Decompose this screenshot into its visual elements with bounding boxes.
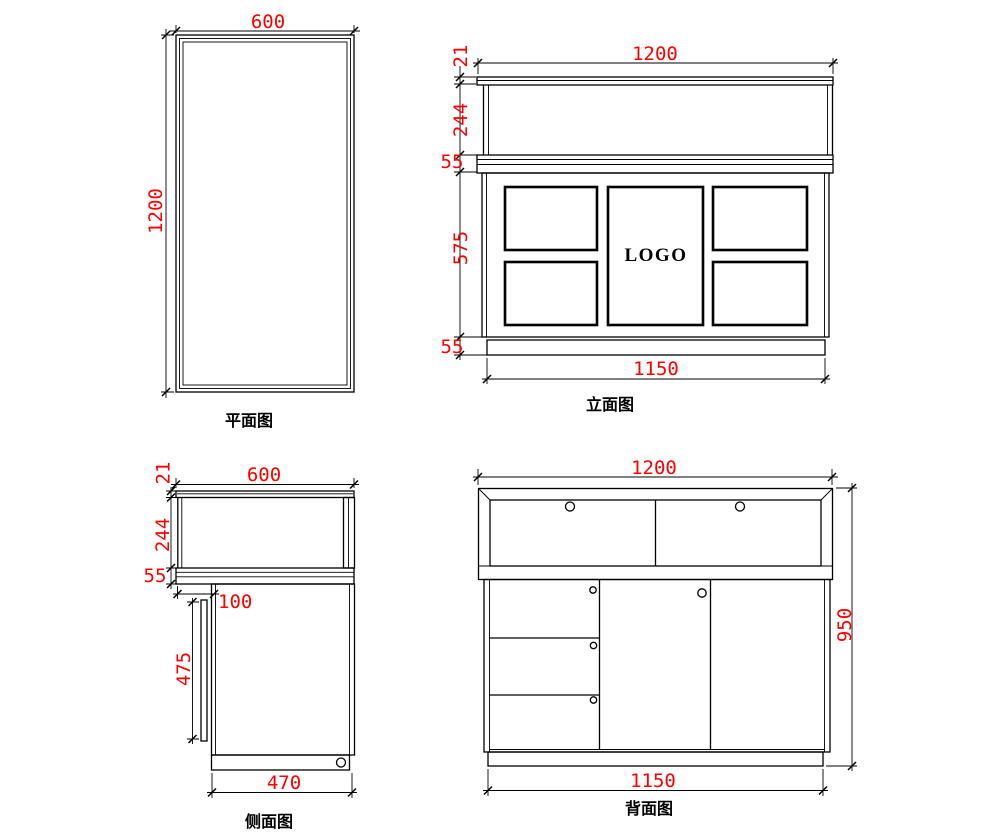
elevation-height-dimension-chain: 21 244 55 575 55 <box>441 45 487 360</box>
drawing-sheet: 600 1200 平面图 LOGO <box>0 0 1000 839</box>
plan-height-dimension: 1200 <box>145 29 174 398</box>
plan-view: 600 1200 平面图 <box>145 11 360 430</box>
elevation-glass-showcase <box>484 85 833 155</box>
side-top-width-dim-text: 600 <box>247 464 281 486</box>
back-bottom-width-dimension: 1150 <box>483 769 828 796</box>
back-base-plinth <box>488 752 823 766</box>
elevation-cabinet-body: LOGO <box>482 173 829 355</box>
elevation-counter-dim-text: 55 <box>441 151 464 173</box>
back-drawer-hole-3 <box>590 697 596 703</box>
elevation-bottom-width-dim-text: 1150 <box>633 358 679 380</box>
side-view: 600 21 244 55 100 <box>144 462 359 831</box>
back-bottom-width-dim-text: 1150 <box>630 770 676 792</box>
technical-drawing-canvas: 600 1200 平面图 LOGO <box>0 0 1000 839</box>
side-top-width-dimension: 600 <box>171 464 359 489</box>
elevation-body-dim-text: 575 <box>450 231 472 265</box>
back-lower-edge-lines <box>490 580 825 753</box>
side-view-label: 侧面图 <box>245 812 293 831</box>
elevation-base-dim-text: 55 <box>441 336 464 358</box>
side-top-cap <box>176 491 354 498</box>
elevation-bottom-width-dimension: 1150 <box>482 358 830 384</box>
side-counter-dim-text: 55 <box>144 565 167 587</box>
back-lower-outline <box>484 580 830 753</box>
elevation-cap-bar <box>477 77 833 85</box>
back-top-width-dimension: 1200 <box>473 457 838 485</box>
elevation-panel-right-bottom <box>713 262 807 325</box>
plan-view-label: 平面图 <box>225 412 273 430</box>
plan-width-dimension: 600 <box>170 11 360 35</box>
side-back-panel <box>201 600 207 741</box>
back-top-width-dim-text: 1200 <box>631 457 677 479</box>
side-glass-post-right <box>344 498 355 569</box>
back-view-label: 背面图 <box>625 799 673 818</box>
back-cabinet-lower <box>484 580 830 767</box>
elevation-glass-posts-outer <box>484 85 833 155</box>
back-showcase-top <box>479 489 833 580</box>
elevation-top-cap <box>477 77 833 85</box>
side-inset-dim-text: 100 <box>218 591 252 613</box>
back-drawer-hole-1 <box>590 587 596 593</box>
elevation-glass-dim-text: 244 <box>450 103 472 137</box>
logo-text: LOGO <box>624 245 687 266</box>
elevation-cap-dim-text: 21 <box>450 45 472 68</box>
back-view: 1200 950 1150 <box>473 457 857 818</box>
elevation-panel-left-bottom <box>505 262 597 325</box>
side-inset-dimension: 100 <box>173 586 252 613</box>
side-glass-dim-text: 244 <box>152 518 174 552</box>
plan-width-dim-text: 600 <box>251 11 285 33</box>
back-drawer-and-door-divisions <box>490 580 711 750</box>
elevation-top-width-dimension: 1200 <box>473 43 838 74</box>
elevation-top-width-dim-text: 1200 <box>632 43 678 65</box>
elevation-counter-bar <box>477 155 833 173</box>
plan-counter-top-outline <box>176 35 354 392</box>
elevation-counter-band <box>477 155 833 173</box>
back-height-dimension: 950 <box>826 483 857 771</box>
side-height-dimension-chain: 21 244 55 <box>144 462 176 589</box>
elevation-view: LOGO 1200 21 244 55 575 55 1150 立面图 <box>441 43 838 414</box>
back-sliding-door-hole-right <box>736 502 745 511</box>
plan-height-dim-text: 1200 <box>145 188 167 234</box>
back-height-dim-text: 950 <box>834 608 856 642</box>
plan-outer-frame <box>176 35 354 392</box>
side-back-panel-dim-text: 475 <box>173 652 195 686</box>
elevation-view-label: 立面图 <box>586 395 634 414</box>
side-back-panel-dimension: 475 <box>173 598 199 744</box>
side-cap-bar <box>176 491 354 498</box>
side-bottom-width-dimension: 470 <box>207 772 357 798</box>
side-base-plinth <box>212 755 350 770</box>
plan-inner-frame <box>183 42 347 385</box>
side-glass-showcase <box>178 498 355 569</box>
back-sliding-door-hole-left <box>566 502 575 511</box>
back-drawer-hole-2 <box>590 642 596 648</box>
side-counter-bar <box>176 568 354 584</box>
side-bottom-width-dim-text: 470 <box>267 772 301 794</box>
elevation-panel-right-top <box>713 187 807 250</box>
side-counter-inner-lines <box>176 572 354 577</box>
side-base-hole <box>337 758 346 767</box>
plan-mid-frame <box>180 39 351 389</box>
side-counter-band <box>176 568 354 584</box>
side-cap-dim-text: 21 <box>153 462 175 485</box>
elevation-counter-inner-lines <box>477 160 833 165</box>
elevation-base-plinth <box>487 340 825 355</box>
elevation-panel-left-top <box>505 187 597 250</box>
elevation-glass-posts-inner <box>489 85 828 155</box>
back-door-hole <box>698 589 706 597</box>
